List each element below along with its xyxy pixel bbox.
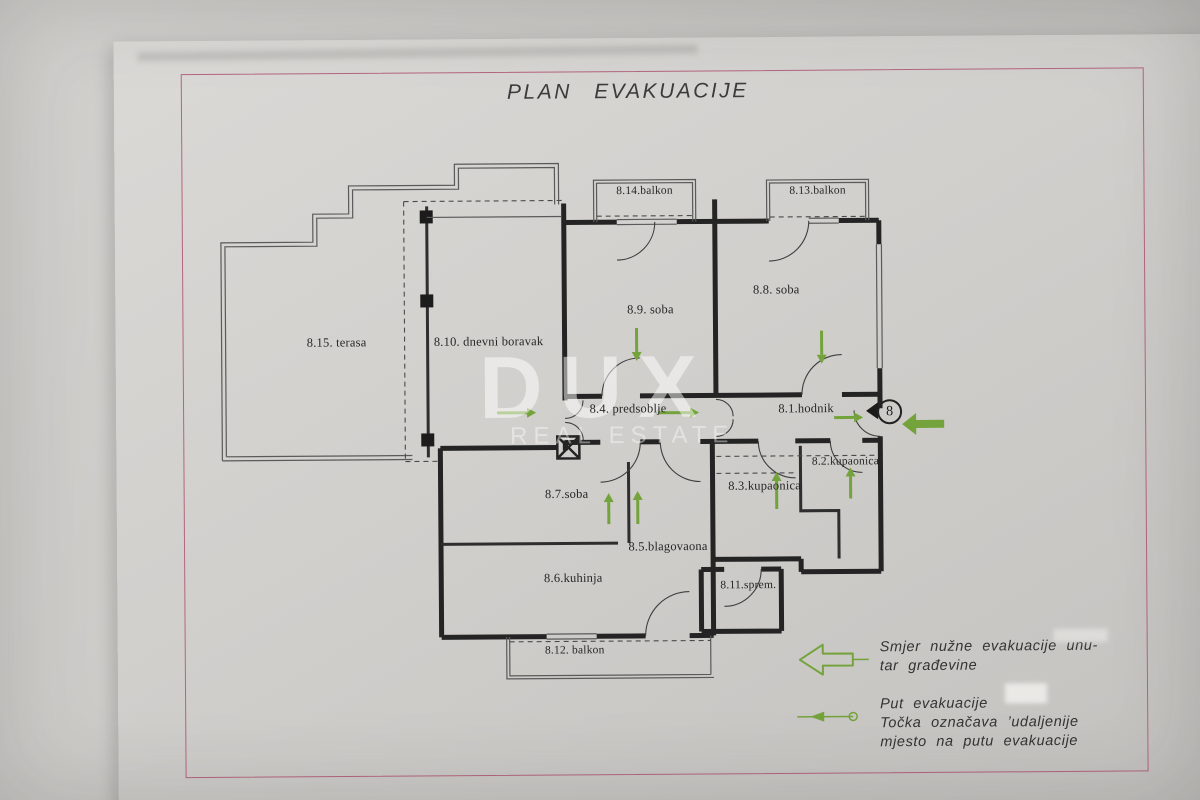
paper-sheet-layer: DUX REAL ESTATE PLAN EVAKUACIJE 8.15. te… bbox=[0, 0, 1200, 800]
room-label-hodnik: 8.1.hodnik bbox=[778, 401, 834, 416]
legend-direction-arrow-icon bbox=[800, 644, 869, 674]
legend-direction-line1: Smjer nužne evakuacije unu- bbox=[880, 637, 1098, 658]
room-label-terasa: 8.15. terasa bbox=[307, 335, 367, 350]
exit-direction-arrow bbox=[902, 413, 944, 435]
evac-arrow-soba8-down bbox=[817, 331, 827, 364]
room-label-predsoblje: 8.4. predsoblje bbox=[590, 401, 667, 417]
legend-direction: Smjer nužne evakuacije unu- tar građevin… bbox=[880, 637, 1098, 677]
room-label-blagovaona: 8.5.blagovaona bbox=[628, 539, 707, 555]
legend-route-line2: Točka označava ’udaljenije bbox=[880, 713, 1079, 733]
room-label-soba-9: 8.9. soba bbox=[627, 302, 674, 317]
room-label-soba-7: 8.7.soba bbox=[545, 487, 588, 502]
room-label-dnevni-boravak: 8.10. dnevni boravak bbox=[434, 334, 544, 350]
room-label-kupaonica-2: 8.2.kupaonica bbox=[812, 455, 879, 467]
evac-arrow-kupaonica2-up bbox=[845, 467, 855, 498]
legend-route-icon bbox=[797, 711, 857, 721]
legend-direction-line2: tar građevine bbox=[880, 656, 1098, 677]
room-label-kupaonica-3: 8.3.kupaonica bbox=[728, 478, 801, 494]
room-label-balkon-13: 8.13.balkon bbox=[789, 184, 846, 196]
room-label-sprem: 8.11.sprem. bbox=[720, 579, 776, 591]
evac-arrow-hodnik-right bbox=[834, 412, 863, 422]
legend-route-line3: mjesto na putu evakuacije bbox=[880, 732, 1079, 752]
evac-arrow-blagovaona-up bbox=[633, 491, 643, 524]
room-label-kuhinja: 8.6.kuhinja bbox=[544, 571, 603, 586]
watermark-real-estate: REAL ESTATE bbox=[510, 421, 734, 451]
legend-route: Put evakuacije Točka označava ’udaljenij… bbox=[880, 694, 1079, 752]
legend-route-line1: Put evakuacije bbox=[880, 694, 1079, 714]
room-label-balkon-14: 8.14.balkon bbox=[616, 185, 673, 197]
room-label-balkon-12: 8.12. balkon bbox=[545, 644, 605, 656]
page-title: PLAN EVAKUACIJE bbox=[507, 79, 749, 105]
evac-arrow-soba7-up bbox=[604, 493, 614, 524]
room-label-soba-8: 8.8. soba bbox=[753, 282, 800, 297]
photo-of-evacuation-plan: DUX REAL ESTATE PLAN EVAKUACIJE 8.15. te… bbox=[0, 0, 1200, 800]
evacuation-point-marker: 8 bbox=[877, 399, 902, 424]
